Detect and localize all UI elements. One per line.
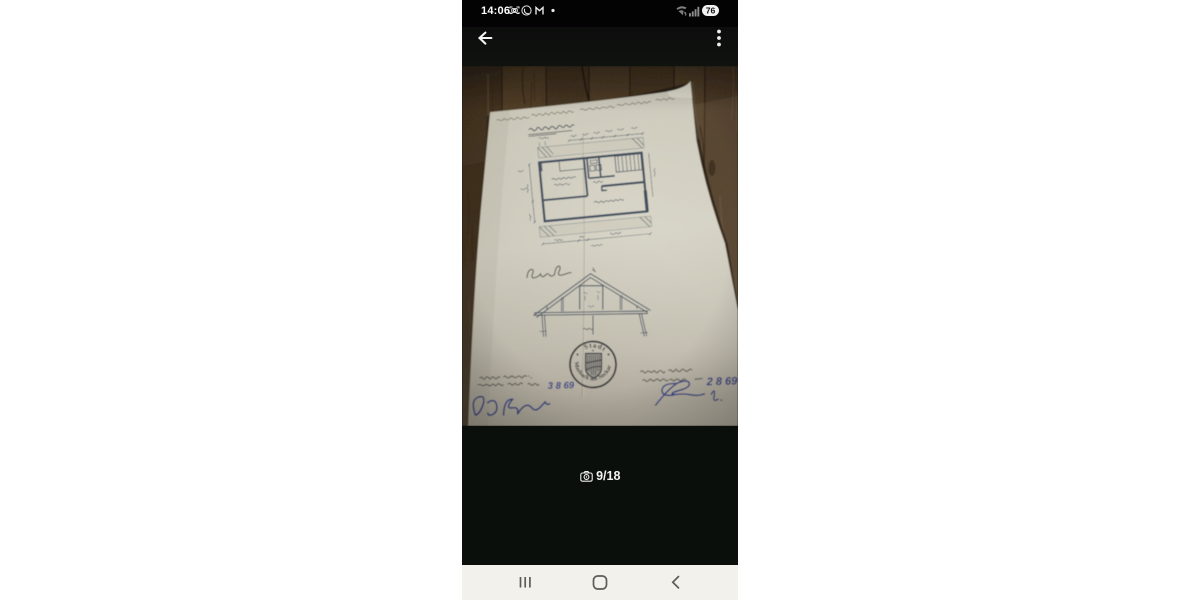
svg-text:76: 76 bbox=[706, 5, 716, 15]
